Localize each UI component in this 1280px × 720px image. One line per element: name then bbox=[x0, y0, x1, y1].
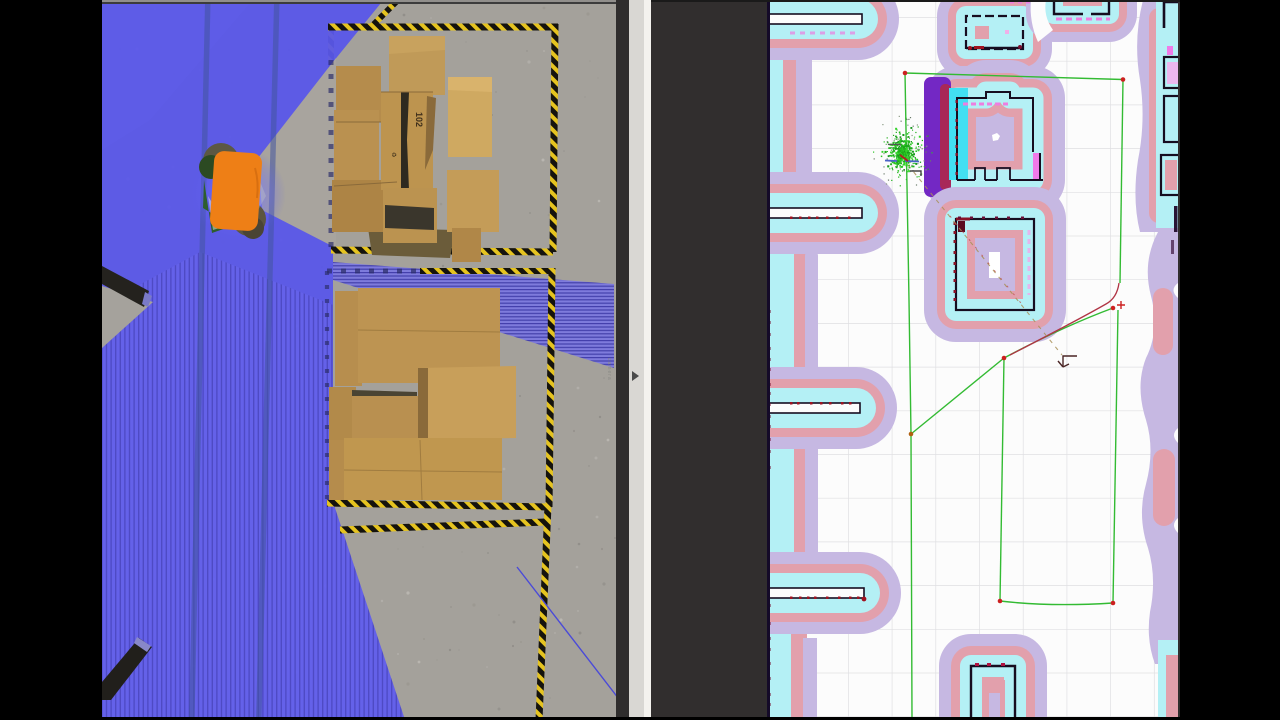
svg-text:102: 102 bbox=[414, 112, 424, 127]
svg-text:♻: ♻ bbox=[390, 152, 397, 157]
